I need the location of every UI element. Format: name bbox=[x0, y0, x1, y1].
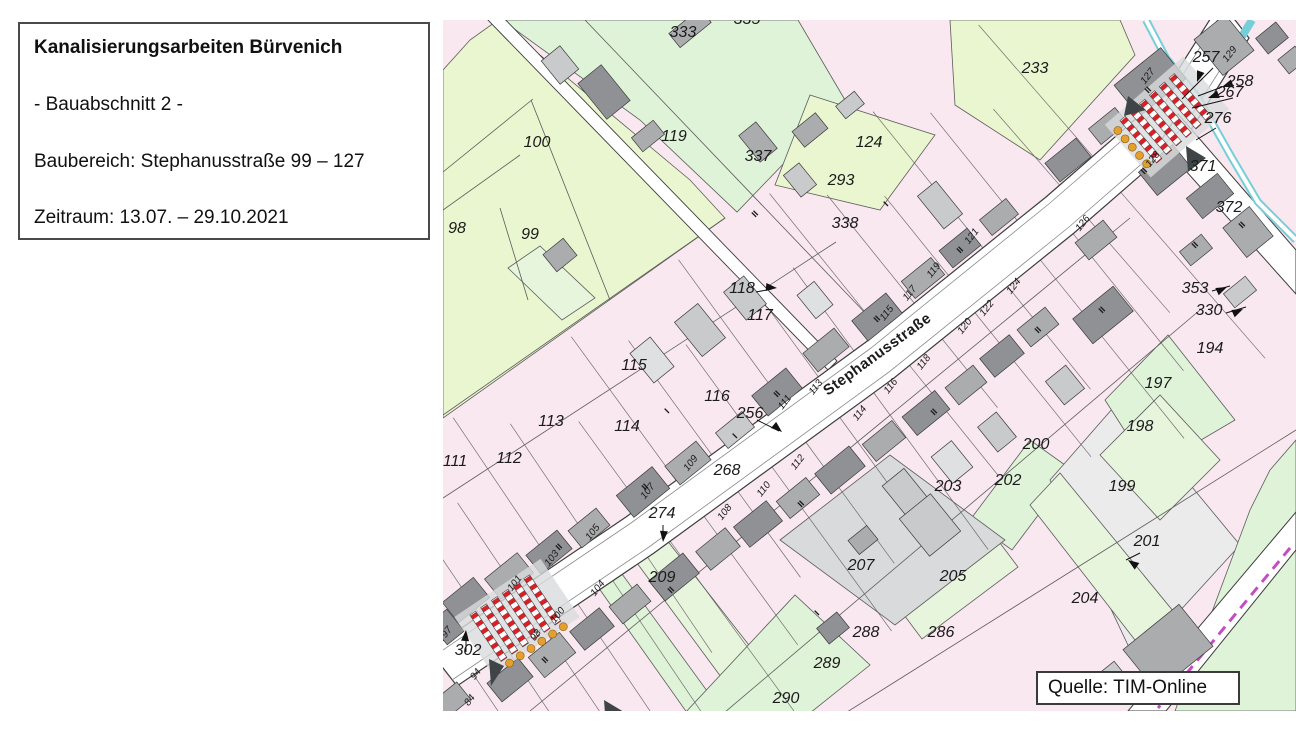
parcel-number: 202 bbox=[994, 472, 1022, 489]
page: { "info_box": { "title": "Kanalisierungs… bbox=[0, 0, 1296, 729]
source-label: Quelle: TIM-Online bbox=[1048, 677, 1207, 699]
parcel-number: 203 bbox=[934, 478, 962, 495]
parcel-number: 290 bbox=[772, 690, 800, 707]
parcel-number: 372 bbox=[1216, 199, 1243, 216]
parcel-number: 199 bbox=[1109, 478, 1136, 495]
parcel-number: 276 bbox=[1204, 110, 1232, 127]
map-image: 3333352331001191243372933389899118117115… bbox=[0, 0, 1296, 729]
parcel-number: 118 bbox=[729, 280, 755, 297]
parcel-number: 119 bbox=[661, 128, 687, 145]
parcel-number: 205 bbox=[939, 568, 967, 585]
cadastral-map: 3333352331001191243372933389899118117115… bbox=[0, 0, 1296, 729]
parcel-number: 198 bbox=[1127, 418, 1154, 435]
parcel-number: 289 bbox=[813, 655, 841, 672]
parcel-number: 124 bbox=[856, 134, 883, 151]
parcel-number: 338 bbox=[832, 215, 859, 232]
parcel-number: 197 bbox=[1145, 375, 1173, 392]
parcel-number: 268 bbox=[713, 462, 741, 479]
parcel-number: 194 bbox=[1197, 340, 1224, 357]
parcel-number: 209 bbox=[648, 569, 676, 586]
parcel-number: 111 bbox=[443, 453, 467, 470]
parcel-number: 302 bbox=[455, 642, 482, 659]
parcel-number: 330 bbox=[1196, 302, 1223, 319]
parcel-number: 100 bbox=[524, 134, 551, 151]
parcel-number: 204 bbox=[1071, 590, 1099, 607]
parcel-number: 200 bbox=[1022, 436, 1050, 453]
parcel-number: 288 bbox=[852, 624, 880, 641]
parcel-number: 286 bbox=[927, 624, 955, 641]
parcel-number: 335 bbox=[734, 11, 761, 28]
parcel-number: 371 bbox=[1190, 158, 1217, 175]
parcel-number: 333 bbox=[670, 24, 697, 41]
parcel-number: 293 bbox=[827, 172, 855, 189]
source-box: Quelle: TIM-Online bbox=[1036, 671, 1240, 705]
map-layers: 3333352331001191243372933389899118117115… bbox=[400, 2, 1296, 729]
parcel-number: 113 bbox=[538, 413, 564, 430]
parcel-number: 233 bbox=[1021, 60, 1049, 77]
parcel-number: 201 bbox=[1133, 533, 1161, 550]
parcel-number: 257 bbox=[1192, 49, 1221, 66]
parcel-number: 267 bbox=[1216, 84, 1245, 101]
parcel-number: 98 bbox=[448, 220, 466, 237]
parcel-number: 353 bbox=[1182, 280, 1209, 297]
parcel-number: 337 bbox=[745, 148, 773, 165]
parcel-number: 99 bbox=[521, 226, 539, 243]
parcel-number: 115 bbox=[621, 357, 647, 374]
parcel-number: 274 bbox=[648, 505, 676, 522]
parcel-number: 114 bbox=[614, 418, 640, 435]
parcel-number: 116 bbox=[704, 388, 730, 405]
lot-divider bbox=[405, 582, 444, 640]
parcel-number: 256 bbox=[736, 405, 764, 422]
parcel-number: 207 bbox=[847, 557, 876, 574]
parcel-number: 117 bbox=[747, 307, 774, 324]
parcel-number: 112 bbox=[496, 450, 522, 467]
